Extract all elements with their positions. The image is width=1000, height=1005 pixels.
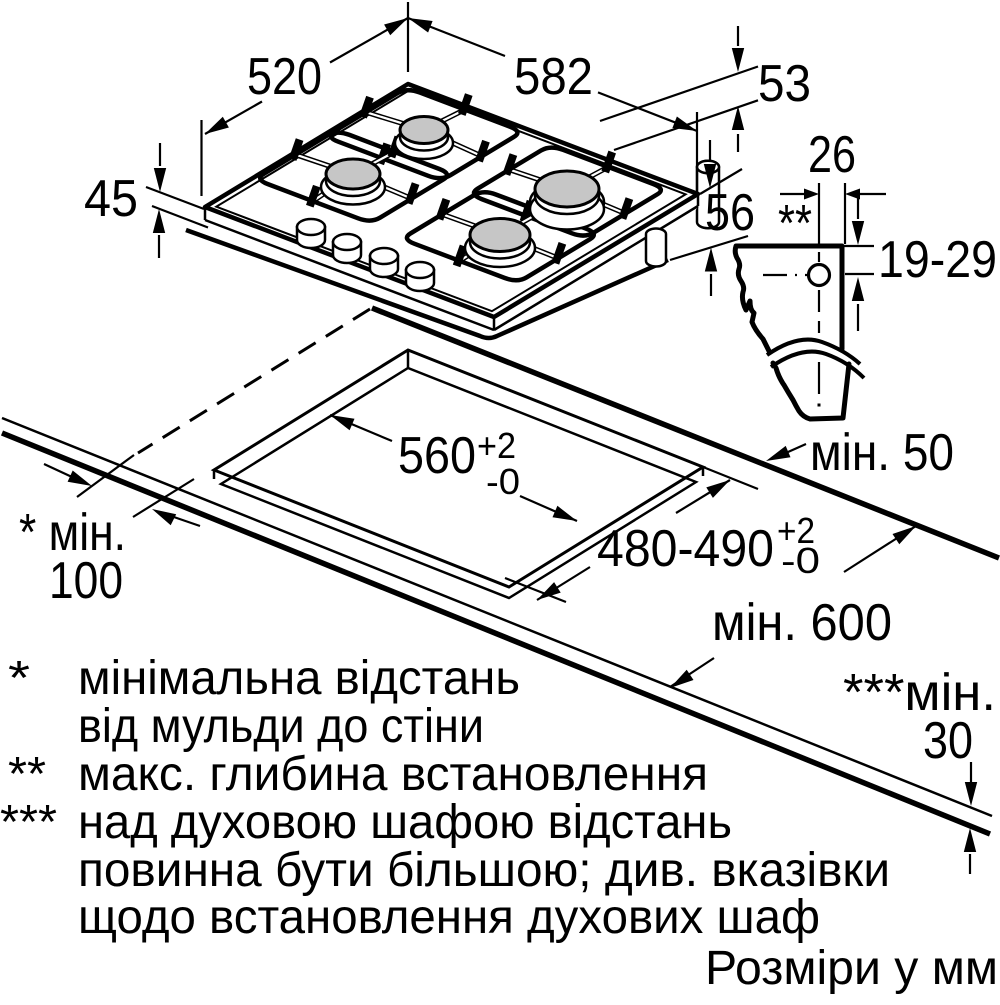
svg-text:*: * [8,652,30,705]
svg-text:***мін.: ***мін. [843,664,996,722]
svg-text:***: *** [0,796,57,849]
svg-text:30: 30 [923,712,973,770]
svg-text:520: 520 [247,48,322,106]
svg-text:480-490: 480-490 [597,520,774,578]
svg-text:582: 582 [514,48,593,106]
svg-text:56: 56 [705,184,755,242]
svg-text:45: 45 [84,170,138,228]
svg-text:19-29: 19-29 [878,231,997,289]
svg-text:мінімальна відстань: мінімальна відстань [78,652,520,705]
svg-text:-0: -0 [781,540,820,581]
svg-text:+2: +2 [477,425,516,466]
svg-text:-0: -0 [486,461,520,502]
svg-text:**: ** [8,748,46,801]
svg-text:Розміри у мм: Розміри у мм [705,942,998,995]
svg-text:над духовою шафою відстань: над духовою шафою відстань [78,796,732,849]
svg-text:**: ** [778,195,812,253]
svg-text:53: 53 [758,55,811,113]
svg-text:мін. 50: мін. 50 [810,424,954,482]
svg-text:повинна бути більшою; див. вка: повинна бути більшою; див. вказівки [78,844,890,897]
svg-text:26: 26 [808,126,856,184]
svg-text:560: 560 [398,427,476,485]
svg-text:мін. 600: мін. 600 [712,594,892,652]
svg-text:від мульди до стіни: від мульди до стіни [78,700,484,753]
svg-text:макс. глибина встановлення: макс. глибина встановлення [78,748,708,801]
svg-text:щодо встановлення духових шаф: щодо встановлення духових шаф [78,891,820,944]
svg-text:100: 100 [49,552,123,610]
